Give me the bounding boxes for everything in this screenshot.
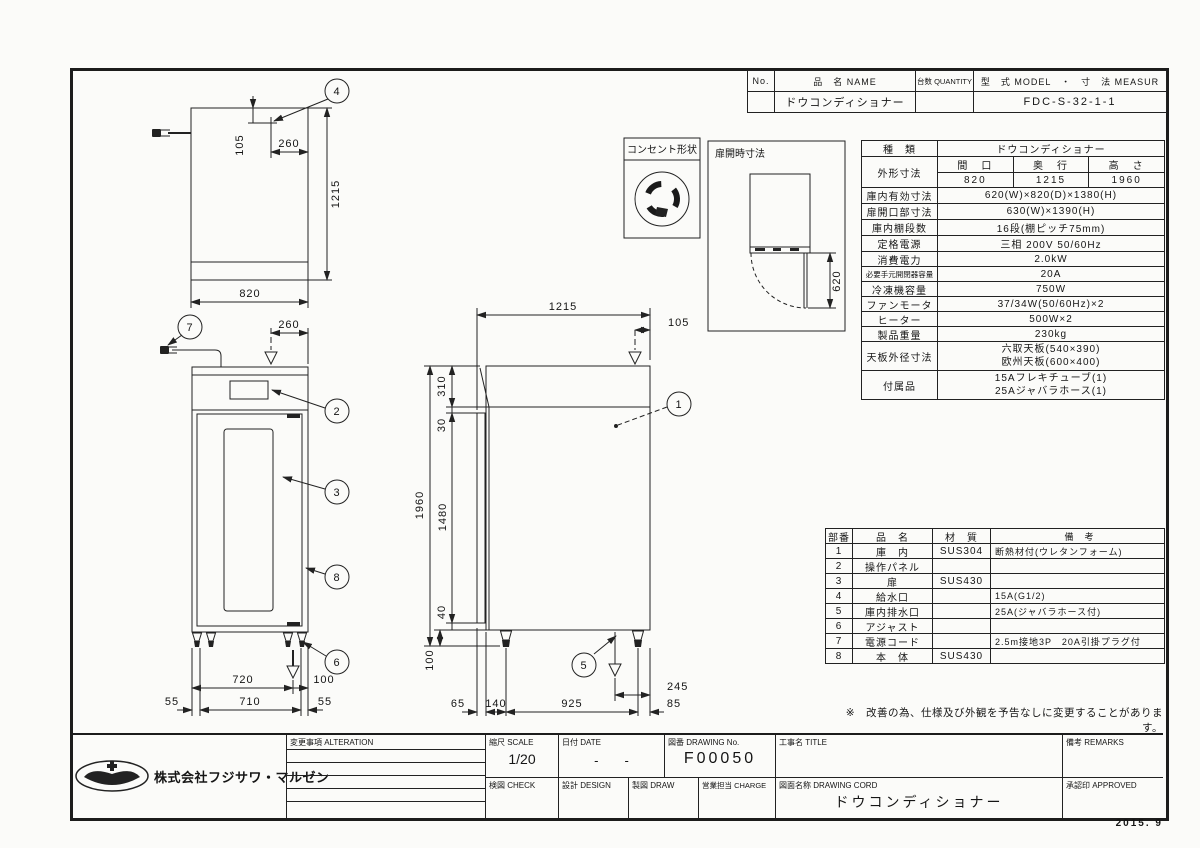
dim-door-620: 620 [831, 270, 843, 291]
date-stamp: 2015. 9 [1080, 818, 1163, 829]
balloon-2-label: 2 [333, 406, 340, 418]
spec-row-kind: 種 類 ドウコンディショナー [862, 141, 1164, 157]
dim-side-925: 925 [561, 698, 582, 710]
drawing-name-cell: 図面名称 DRAWING CORD ドウコンディショナー [775, 777, 1062, 818]
col-no: No. [748, 71, 775, 91]
spec-row-top-plate: 天板外径寸法 六取天板(540×390)欧州天板(600×400) [862, 342, 1164, 371]
dim-plan-260: 260 [278, 138, 299, 150]
drain-arrow [287, 666, 299, 678]
product-name: ドウコンディショナー [775, 92, 916, 112]
plan-view: 105 260 1215 820 4 [152, 79, 349, 308]
spec-row: 必要手元開閉器容量20A [862, 267, 1164, 282]
name-table-header: No. 品 名 NAME 台数 QUANTITY 型 式 MODEL ・ 寸 法… [748, 71, 1166, 92]
dim-side-30: 30 [436, 418, 448, 432]
alteration-cell: 変更事項 ALTERATION [286, 735, 485, 818]
logo-cell: 株式会社フジサワ・マルゼン [70, 735, 286, 818]
balloon-3-label: 3 [333, 487, 340, 499]
spec-row: 製品重量230kg [862, 327, 1164, 342]
parts-row: 3扉SUS430 [826, 574, 1164, 589]
dim-side-100: 100 [424, 649, 436, 670]
draw-cell: 製図 DRAW [628, 777, 698, 818]
dim-plan-820: 820 [239, 288, 260, 300]
parts-row: 4給水口15A(G1/2) [826, 589, 1164, 604]
dim-front-260: 260 [278, 319, 299, 331]
dim-side-310: 310 [436, 375, 448, 396]
check-cell: 検図 CHECK [485, 777, 558, 818]
approved-cell: 承認印 APPROVED [1062, 777, 1163, 818]
dim-front-100: 100 [313, 674, 334, 686]
title-block: 株式会社フジサワ・マルゼン 変更事項 ALTERATION 縮尺 SCALE 1… [70, 733, 1163, 818]
disclaimer-note: ※ 改善の為、仕様及び外観を予告なしに変更することがあります。 [840, 705, 1163, 735]
side-door-slab [477, 413, 485, 623]
spec-row: 扉開口部寸法630(W)×1390(H) [862, 204, 1164, 220]
dim-plan-105: 105 [234, 134, 246, 155]
parts-header: 部番品 名 材 質備 考 [826, 529, 1164, 544]
dim-side-105: 105 [668, 317, 689, 329]
spec-row: 消費電力2.0kW [862, 252, 1164, 267]
parts-table: 部番品 名 材 質備 考 1庫 内SUS304断熱材付(ウレタンフォーム) 2操… [825, 528, 1165, 664]
spec-row-outer: 外形寸法 間 口 奥 行 高 さ 820 1215 1960 [862, 157, 1164, 188]
spec-table: 種 類 ドウコンディショナー 外形寸法 間 口 奥 行 高 さ 820 1215… [861, 140, 1165, 400]
outlet-icon [635, 172, 689, 226]
name-model-table: No. 品 名 NAME 台数 QUANTITY 型 式 MODEL ・ 寸 法… [747, 70, 1167, 113]
balloon-7-label: 7 [186, 322, 193, 334]
dim-front-720: 720 [232, 674, 253, 686]
power-plug [160, 346, 169, 354]
dim-plan-1215: 1215 [330, 180, 342, 208]
drawing-no-cell: 図番 DRAWING No. F00050 [664, 735, 775, 777]
spec-row: 庫内有効寸法620(W)×820(D)×1380(H) [862, 188, 1164, 204]
model-number: FDC-S-32-1-1 [974, 92, 1166, 112]
scale-value: 1/20 [489, 748, 555, 770]
balloon-4-label: 4 [333, 86, 340, 98]
alteration-label: 変更事項 ALTERATION [290, 737, 482, 748]
date-cell: 日付 DATE - - [558, 735, 664, 777]
side-view: 1215 105 1 5 245 65 140 925 85 [414, 301, 691, 716]
parts-row: 2操作パネル [826, 559, 1164, 574]
logo-bird-icon [84, 771, 140, 785]
dim-side-245: 245 [667, 681, 688, 693]
balloon-1-label: 1 [675, 399, 682, 411]
door [197, 414, 302, 626]
front-legs [193, 633, 307, 647]
side-drain-arrow [609, 664, 621, 676]
outlet-box-label: コンセント形状 [627, 143, 697, 156]
parts-row: 7電源コード2.5m接地3P 20A引掛プラグ付 [826, 634, 1164, 649]
door-open-box-label: 扉開時寸法 [715, 147, 765, 160]
plan-pipe-fitting [152, 129, 161, 137]
parts-row: 5庫内排水口25A(ジャバラホース付) [826, 604, 1164, 619]
dim-front-55l: 55 [165, 696, 179, 708]
name-table-row: ドウコンディショナー FDC-S-32-1-1 [748, 92, 1166, 112]
dim-side-65: 65 [451, 698, 465, 710]
control-panel [230, 381, 268, 399]
col-name: 品 名 NAME [775, 71, 916, 91]
drawing-name-value: ドウコンディショナー [779, 791, 1059, 813]
dim-side-1480: 1480 [437, 503, 449, 531]
spec-row: 定格電源三相 200V 50/60Hz [862, 236, 1164, 252]
date-value: - - [562, 748, 661, 770]
dim-side-1960: 1960 [414, 491, 426, 519]
dim-side-85: 85 [667, 698, 681, 710]
col-qty: 台数 QUANTITY [916, 71, 974, 91]
door-open-box: 扉開時寸法 620 [708, 141, 845, 331]
balloon-8-label: 8 [333, 572, 340, 584]
door-window [224, 429, 273, 611]
dim-side-40: 40 [436, 605, 448, 619]
dim-front-55r: 55 [318, 696, 332, 708]
parts-row: 6アジャスト [826, 619, 1164, 634]
design-cell: 設計 DESIGN [558, 777, 628, 818]
charge-cell: 営業担当 CHARGE [698, 777, 775, 818]
dim-side-1215: 1215 [549, 301, 577, 313]
col-model: 型 式 MODEL ・ 寸 法 MEASUR [974, 71, 1166, 91]
balloon-6-label: 6 [333, 657, 340, 669]
title-cell: 工事名 TITLE [775, 735, 1062, 777]
front-view: 7 260 2 3 8 6 720 100 55 [160, 315, 349, 716]
dim-side-140: 140 [485, 698, 506, 710]
spec-row: ファンモータ37/34W(50/60Hz)×2 [862, 297, 1164, 312]
balloon-5-label: 5 [580, 660, 587, 672]
scale-cell: 縮尺 SCALE 1/20 [485, 735, 558, 777]
outlet-box: コンセント形状 [624, 138, 700, 238]
remarks-cell: 備考 REMARKS [1062, 735, 1163, 777]
spec-row: 庫内棚段数16段(棚ピッチ75mm) [862, 220, 1164, 236]
dim-front-710: 710 [239, 696, 260, 708]
spec-row-accessories: 付属品 15Aフレキチューブ(1)25Aジャバラホース(1) [862, 371, 1164, 400]
drawing-no-value: F00050 [668, 748, 772, 770]
supply-arrow [629, 352, 641, 364]
side-legs [501, 631, 644, 647]
spec-row: ヒーター500W×2 [862, 312, 1164, 327]
parts-row: 1庫 内SUS304断熱材付(ウレタンフォーム) [826, 544, 1164, 559]
spec-row: 冷凍機容量750W [862, 282, 1164, 297]
parts-row: 8本 体SUS430 [826, 649, 1164, 664]
flow-arrow [265, 352, 277, 364]
